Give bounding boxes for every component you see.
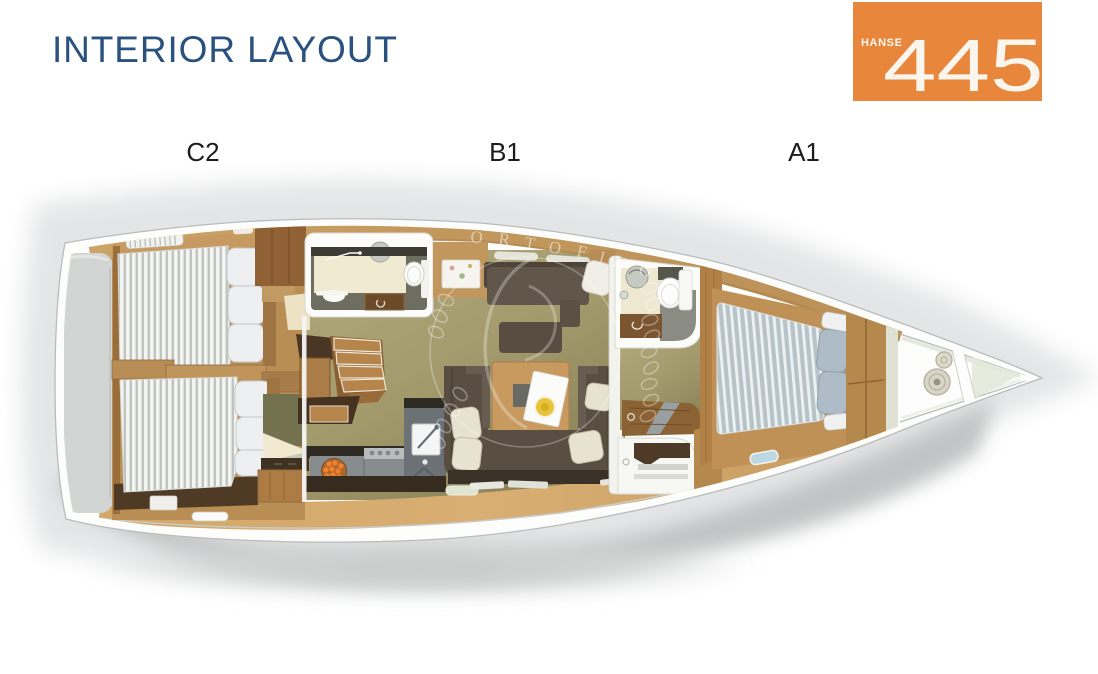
svg-text:445: 445: [883, 25, 1044, 108]
svg-text:A1: A1: [788, 137, 820, 167]
svg-text:B1: B1: [489, 137, 521, 167]
svg-text:INTERIOR LAYOUT: INTERIOR LAYOUT: [52, 29, 398, 70]
svg-text:C2: C2: [186, 137, 219, 167]
